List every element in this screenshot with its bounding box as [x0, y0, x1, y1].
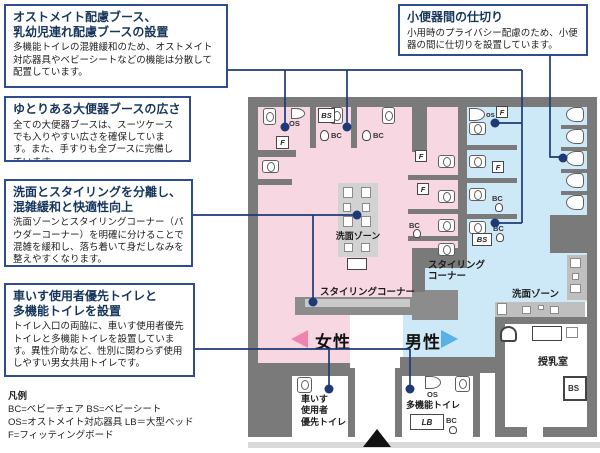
toilet-icon — [469, 155, 486, 168]
wall — [285, 368, 355, 376]
booth-partition — [351, 102, 357, 148]
floor-edge — [248, 442, 600, 448]
sink — [570, 284, 581, 293]
booth-partition — [467, 214, 517, 219]
sink — [343, 203, 351, 212]
wall — [248, 107, 258, 373]
wheelchair-room-label: 車いす 使用者 優先トイレ — [301, 394, 346, 428]
nursing-shelf — [566, 327, 578, 338]
male-wash-zone-label: 洗面ゾーン — [512, 286, 559, 300]
sink — [522, 306, 531, 314]
callout-body: 全ての大便器ブースは、スーツケースでも入りやすい広さを確保しています。また、手す… — [13, 120, 182, 162]
nursing-counter — [532, 326, 562, 341]
baby-chair-icon — [413, 229, 421, 238]
booth-partition — [467, 145, 517, 150]
wall — [348, 368, 355, 437]
baby-chair-icon — [449, 426, 457, 434]
male-styling-label: スタイリング コーナー — [428, 260, 485, 283]
toilet-icon — [438, 243, 455, 256]
nursing-room-label: 授乳室 — [538, 353, 568, 368]
legend-title: 凡例 — [8, 390, 194, 403]
callout-body: トイレ入口の両脇に、車いす使用者優先トイレと多機能トイレを設置しています。異性介… — [13, 321, 186, 370]
urinal-icon — [566, 129, 584, 144]
male-zone-label: 男性 — [405, 328, 441, 353]
booth-partition — [258, 179, 292, 185]
sink — [570, 258, 581, 268]
legend-line: BC=ベビーチェア BS=ベビーシート — [8, 403, 194, 416]
sink — [361, 243, 370, 252]
callout-wash-styling-separation: 洗面とスタイリングを分離し、 混雑緩和と快適性向上 洗面ゾーンとスタイリングコー… — [4, 179, 193, 267]
toilet-icon — [263, 108, 276, 125]
toilet-icon — [438, 155, 455, 168]
male-styling-counter — [412, 290, 458, 320]
wall — [495, 317, 587, 324]
fitting-board-sign: F — [496, 106, 508, 118]
toilet-icon — [455, 376, 470, 392]
large-bed-sign: LB — [410, 414, 444, 430]
urinal-icon — [566, 151, 584, 166]
callout-title: オストメイト配慮ブース、 乳幼児連れ配慮ブースの設置 — [13, 10, 219, 39]
callout-spacious-booths: ゆとりある大便器ブースの広さ 全ての大便器ブースは、スーツケースでも入りやすい広… — [4, 96, 191, 162]
baby-chair-tag: BC — [373, 131, 384, 140]
restroom-floorplan-diagram: OS os OS F F F F F BS BS LB BS BC BC BC … — [0, 0, 600, 453]
fitting-board-sign: F — [276, 136, 289, 149]
wall — [395, 368, 480, 376]
wall — [458, 107, 467, 250]
toilet-icon — [382, 107, 395, 124]
sink — [550, 306, 559, 314]
baby-chair-tag: BC — [493, 224, 504, 233]
entrance-marker-icon — [363, 429, 391, 447]
female-wash-zone-label: 洗面ゾーン — [333, 229, 383, 242]
baby-seat-tag: BS — [568, 384, 579, 393]
ostomate-tag: OS — [289, 119, 300, 128]
wall — [587, 107, 597, 437]
wall — [248, 373, 285, 437]
callout-title: 車いす使用者優先トイレと 多機能トイレを設置 — [13, 289, 186, 318]
toilet-icon — [438, 219, 455, 232]
sink — [538, 305, 544, 310]
callout-title: 洗面とスタイリングを分離し、 混雑緩和と快適性向上 — [13, 185, 184, 214]
fitting-board-sign: F — [415, 150, 427, 162]
male-direction-arrow-icon — [441, 330, 458, 348]
legend: 凡例 BC=ベビーチェア BS=ベビーシート OS=オストメイト対応器具 LB＝… — [8, 390, 194, 442]
callout-wheelchair-multifunction: 車いす使用者優先トイレと 多機能トイレを設置 トイレ入口の両脇に、車いす使用者優… — [4, 283, 195, 377]
baby-chair-tag: BC — [446, 416, 457, 425]
ostomate-tag: os — [486, 110, 495, 119]
callout-title: 小便器間の仕切り — [407, 10, 579, 25]
booth-partition — [258, 150, 296, 157]
legend-line: F=フィッティングボード — [8, 429, 194, 442]
sink — [343, 216, 353, 227]
baby-chair-icon — [495, 203, 503, 212]
baby-seat-sign: BS — [472, 233, 492, 246]
fitting-board-sign: F — [492, 161, 504, 173]
wall — [285, 368, 292, 437]
sink — [343, 187, 353, 198]
callout-ostomate-booths: オストメイト配慮ブース、 乳幼児連れ配慮ブースの設置 多機能トイレの混雑緩和のた… — [4, 4, 228, 88]
callout-title: ゆとりある大便器ブースの広さ — [13, 102, 182, 117]
toilet-icon — [469, 122, 486, 135]
callout-body: 小用時のプライバシー配慮のため、小便器の間に仕切りを設置しています。 — [407, 28, 579, 53]
legend-line: OS=オストメイト対応器具 LB＝大型ベッド — [8, 416, 194, 429]
booth-partition — [408, 175, 458, 180]
baby-chair-icon — [320, 130, 329, 141]
baby-chair-icon — [362, 130, 371, 141]
callout-urinal-partitions: 小便器間の仕切り 小用時のプライバシー配慮のため、小便器の間に仕切りを設置してい… — [398, 4, 588, 56]
callout-body: 多機能トイレの混雑緩和のため、オストメイト対応器具やベビーシートなどの機能は分散… — [13, 42, 219, 79]
toilet-icon — [262, 160, 279, 173]
callout-body: 洗面ゾーンとスタイリングコーナー（パウダーコーナー）を明確に分けることで混雑を緩… — [13, 217, 184, 266]
sink — [361, 216, 371, 227]
urinal-icon — [566, 195, 584, 210]
baby-seat-sign: BS — [318, 108, 335, 123]
sink — [572, 273, 579, 280]
wall — [395, 368, 402, 437]
sink — [361, 187, 371, 198]
booth-partition — [467, 178, 517, 183]
urinal-icon — [566, 107, 584, 122]
toilet-icon — [297, 377, 312, 393]
female-zone-label: 女性 — [315, 328, 351, 353]
female-styling-counter-top — [305, 299, 410, 307]
toilet-icon — [438, 190, 455, 203]
baby-chair-tag: BC — [331, 131, 342, 140]
sink — [362, 203, 370, 212]
toilet-icon — [469, 188, 486, 201]
fitting-board-sign: F — [417, 183, 429, 195]
sink — [497, 303, 507, 315]
sink — [347, 258, 367, 270]
female-styling-label: スタイリングコーナー — [320, 284, 415, 298]
booth-partition — [310, 102, 316, 148]
sink — [344, 243, 353, 252]
baby-chair-tag: BC — [492, 194, 503, 203]
booth-partition — [412, 103, 427, 152]
booth-partition — [408, 209, 458, 214]
urinal-icon — [566, 173, 584, 188]
nursing-chair-icon — [500, 326, 517, 342]
multifunction-room-label: 多機能トイレ — [406, 398, 460, 411]
wall — [550, 215, 597, 253]
baby-chair-icon — [496, 233, 504, 242]
wall — [473, 368, 480, 437]
female-direction-arrow-icon — [291, 330, 308, 348]
wall — [543, 427, 587, 437]
